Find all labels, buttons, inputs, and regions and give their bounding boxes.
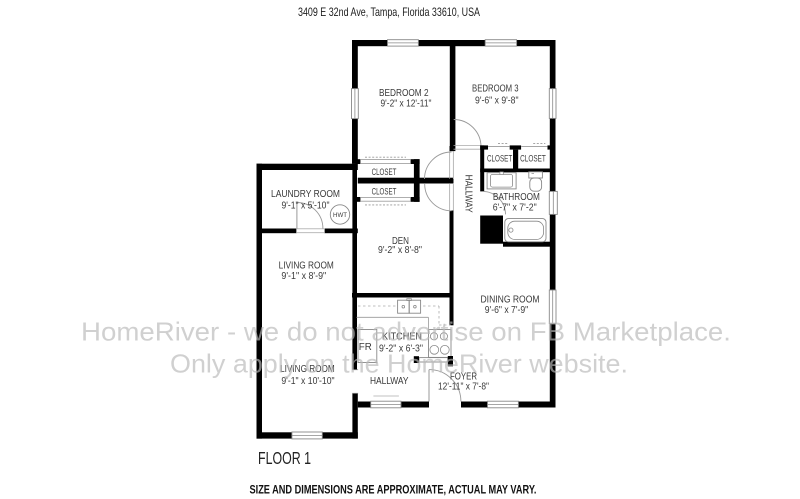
svg-text:3409 E 32nd Ave, Tampa, Florid: 3409 E 32nd Ave, Tampa, Florida 33610, U… — [298, 5, 480, 19]
svg-text:DINING ROOM: DINING ROOM — [481, 295, 540, 306]
svg-text:HWT: HWT — [333, 212, 347, 219]
svg-text:HALLWAY: HALLWAY — [462, 175, 473, 213]
svg-text:9'-1" x 8'-9": 9'-1" x 8'-9" — [281, 271, 326, 282]
svg-text:12'-11" x 7'-8": 12'-11" x 7'-8" — [438, 381, 489, 392]
svg-text:HomeRiver - we do not advertis: HomeRiver - we do not advertise on FB Ma… — [81, 317, 731, 347]
svg-text:6'-7" x 7'-2": 6'-7" x 7'-2" — [493, 202, 537, 213]
svg-text:CLOSET: CLOSET — [372, 186, 397, 197]
svg-text:CLOSET: CLOSET — [372, 167, 397, 178]
svg-text:LAUNDRY ROOM: LAUNDRY ROOM — [271, 189, 340, 200]
svg-text:CLOSET: CLOSET — [520, 154, 546, 165]
svg-text:9'-6" x 7'-9": 9'-6" x 7'-9" — [485, 305, 529, 316]
svg-text:BATHROOM: BATHROOM — [493, 192, 540, 203]
svg-text:CLOSET: CLOSET — [487, 154, 512, 165]
svg-text:Only apply on the HomeRiver we: Only apply on the HomeRiver website. — [170, 349, 628, 379]
svg-text:9'-1" x 5'-10": 9'-1" x 5'-10" — [282, 200, 330, 211]
svg-text:BEDROOM 3: BEDROOM 3 — [472, 84, 519, 95]
svg-text:SIZE AND DIMENSIONS ARE APPROX: SIZE AND DIMENSIONS ARE APPROXIMATE, ACT… — [250, 485, 537, 497]
svg-text:9'-2" x 12'-11": 9'-2" x 12'-11" — [381, 99, 432, 110]
svg-text:9'-2" x 8'-8": 9'-2" x 8'-8" — [378, 245, 422, 256]
svg-text:BEDROOM 2: BEDROOM 2 — [379, 88, 429, 99]
svg-text:9'-6" x 9'-8": 9'-6" x 9'-8" — [475, 96, 519, 107]
svg-text:FLOOR 1: FLOOR 1 — [258, 448, 311, 468]
